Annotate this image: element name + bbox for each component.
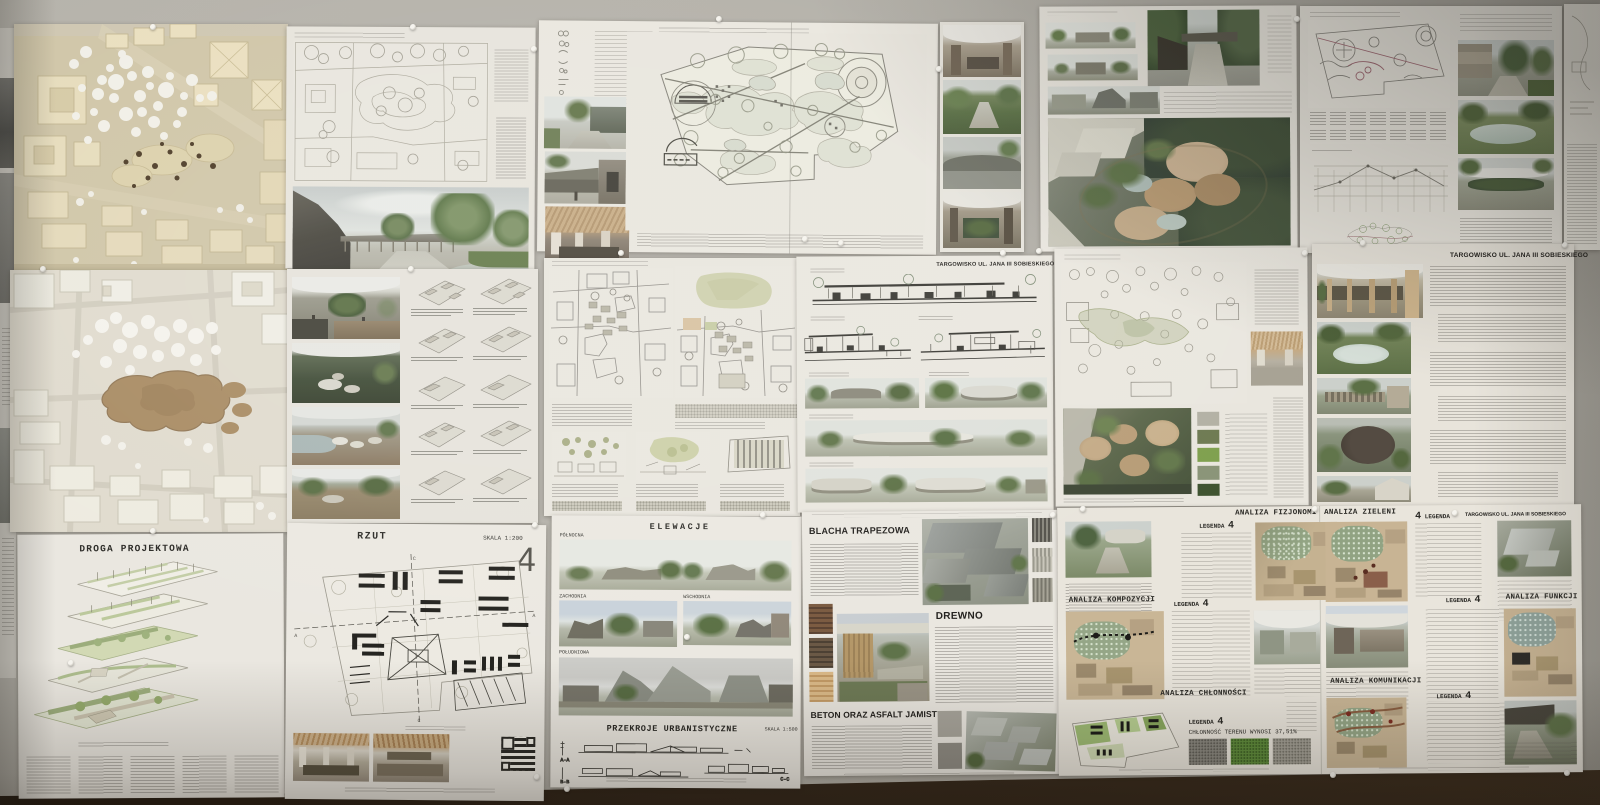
svg-text:C: C: [417, 718, 420, 724]
svg-text:A: A: [294, 633, 297, 639]
svg-text:C: C: [413, 556, 416, 562]
svg-text:C-C: C-C: [780, 777, 789, 783]
svg-text:A-A: A-A: [560, 757, 569, 763]
svg-text:A: A: [532, 613, 535, 619]
svg-text:B-B: B-B: [560, 779, 569, 784]
